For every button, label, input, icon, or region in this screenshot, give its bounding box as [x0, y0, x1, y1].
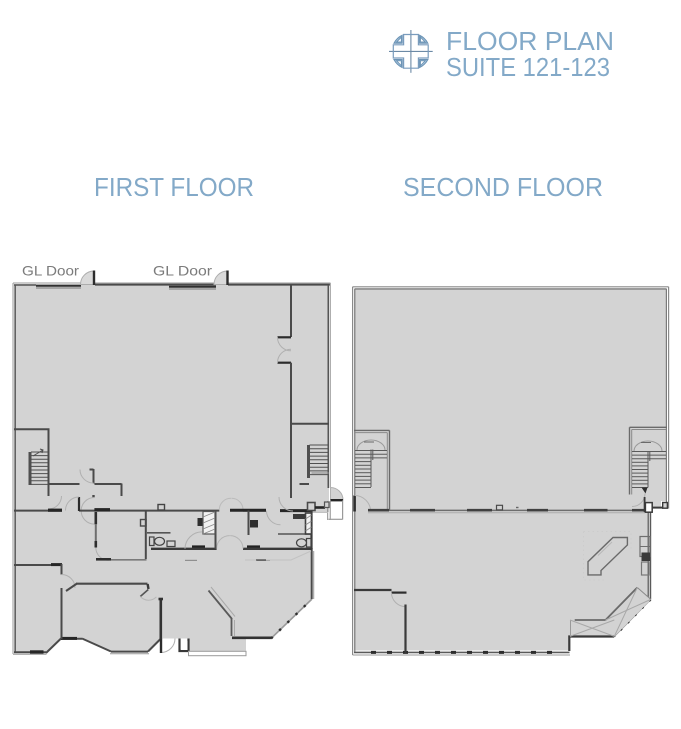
svg-text:GL Door: GL Door — [153, 263, 212, 279]
svg-text:FIRST FLOOR: FIRST FLOOR — [94, 174, 254, 202]
svg-text:SUITE 121-123: SUITE 121-123 — [446, 52, 610, 82]
svg-text:SECOND FLOOR: SECOND FLOOR — [403, 174, 603, 202]
svg-text:GL Door: GL Door — [22, 263, 79, 279]
